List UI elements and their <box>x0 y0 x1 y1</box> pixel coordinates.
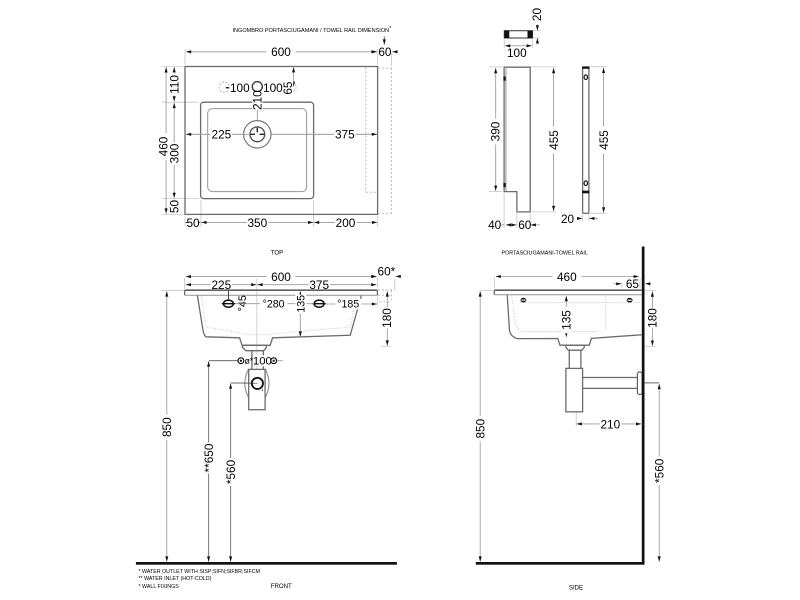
svg-text:455: 455 <box>597 130 611 150</box>
svg-text:FRONT: FRONT <box>271 583 292 590</box>
svg-text:210: 210 <box>600 417 620 431</box>
svg-text:20: 20 <box>530 8 544 22</box>
svg-text:* WALL FIXINGS: * WALL FIXINGS <box>139 584 180 590</box>
svg-text:TOP: TOP <box>271 250 283 257</box>
svg-text:210: 210 <box>250 90 264 110</box>
svg-text:°185: °185 <box>337 299 359 311</box>
svg-text:135: 135 <box>560 310 574 330</box>
svg-text:225: 225 <box>212 128 232 142</box>
svg-text:60: 60 <box>378 45 392 59</box>
svg-text:65: 65 <box>281 81 295 95</box>
svg-text:20: 20 <box>561 212 575 226</box>
svg-text:110: 110 <box>167 75 181 94</box>
svg-text:°280: °280 <box>263 298 285 310</box>
svg-text:100: 100 <box>230 81 250 95</box>
svg-text:375: 375 <box>335 128 355 142</box>
svg-text:40: 40 <box>488 218 502 232</box>
svg-text:460: 460 <box>557 270 577 284</box>
svg-text:850: 850 <box>473 418 487 438</box>
svg-text:*560: *560 <box>652 458 666 483</box>
svg-text:60: 60 <box>518 218 532 232</box>
svg-text:600: 600 <box>271 270 291 284</box>
svg-text:200: 200 <box>336 216 356 230</box>
svg-text:300: 300 <box>168 143 182 163</box>
svg-text:180: 180 <box>380 308 394 328</box>
svg-text:100: 100 <box>507 46 527 60</box>
svg-text:455: 455 <box>547 130 561 150</box>
svg-text:180: 180 <box>646 308 660 328</box>
svg-text:INGOMBRO PORTASCIUGAMANI / TOW: INGOMBRO PORTASCIUGAMANI / TOWEL RAIL DI… <box>233 26 393 34</box>
svg-text:**650: **650 <box>202 443 216 472</box>
svg-text:65: 65 <box>626 277 640 291</box>
svg-text:PORTASCIUGAMANI-TOWEL RAIL: PORTASCIUGAMANI-TOWEL RAIL <box>502 250 588 256</box>
svg-text:*560: *560 <box>224 459 238 484</box>
svg-text:* WATER OUTLET WITH SISP;SIFN: * WATER OUTLET WITH SISP;SIFN;SIFBR;SIFC… <box>139 569 260 575</box>
svg-text:SIDE: SIDE <box>569 584 583 591</box>
svg-text:850: 850 <box>160 417 174 437</box>
svg-text:50: 50 <box>167 200 181 214</box>
svg-text:50: 50 <box>186 216 200 230</box>
svg-text:100: 100 <box>253 356 272 368</box>
svg-text:60*: 60* <box>378 264 396 278</box>
svg-text:°45: °45 <box>237 295 249 311</box>
svg-text:** WATER INLET (HOT-COLD): ** WATER INLET (HOT-COLD) <box>139 576 212 582</box>
svg-text:135: 135 <box>296 295 308 313</box>
svg-text:390: 390 <box>489 121 503 141</box>
svg-text:350: 350 <box>247 216 267 230</box>
svg-text:600: 600 <box>271 45 291 59</box>
